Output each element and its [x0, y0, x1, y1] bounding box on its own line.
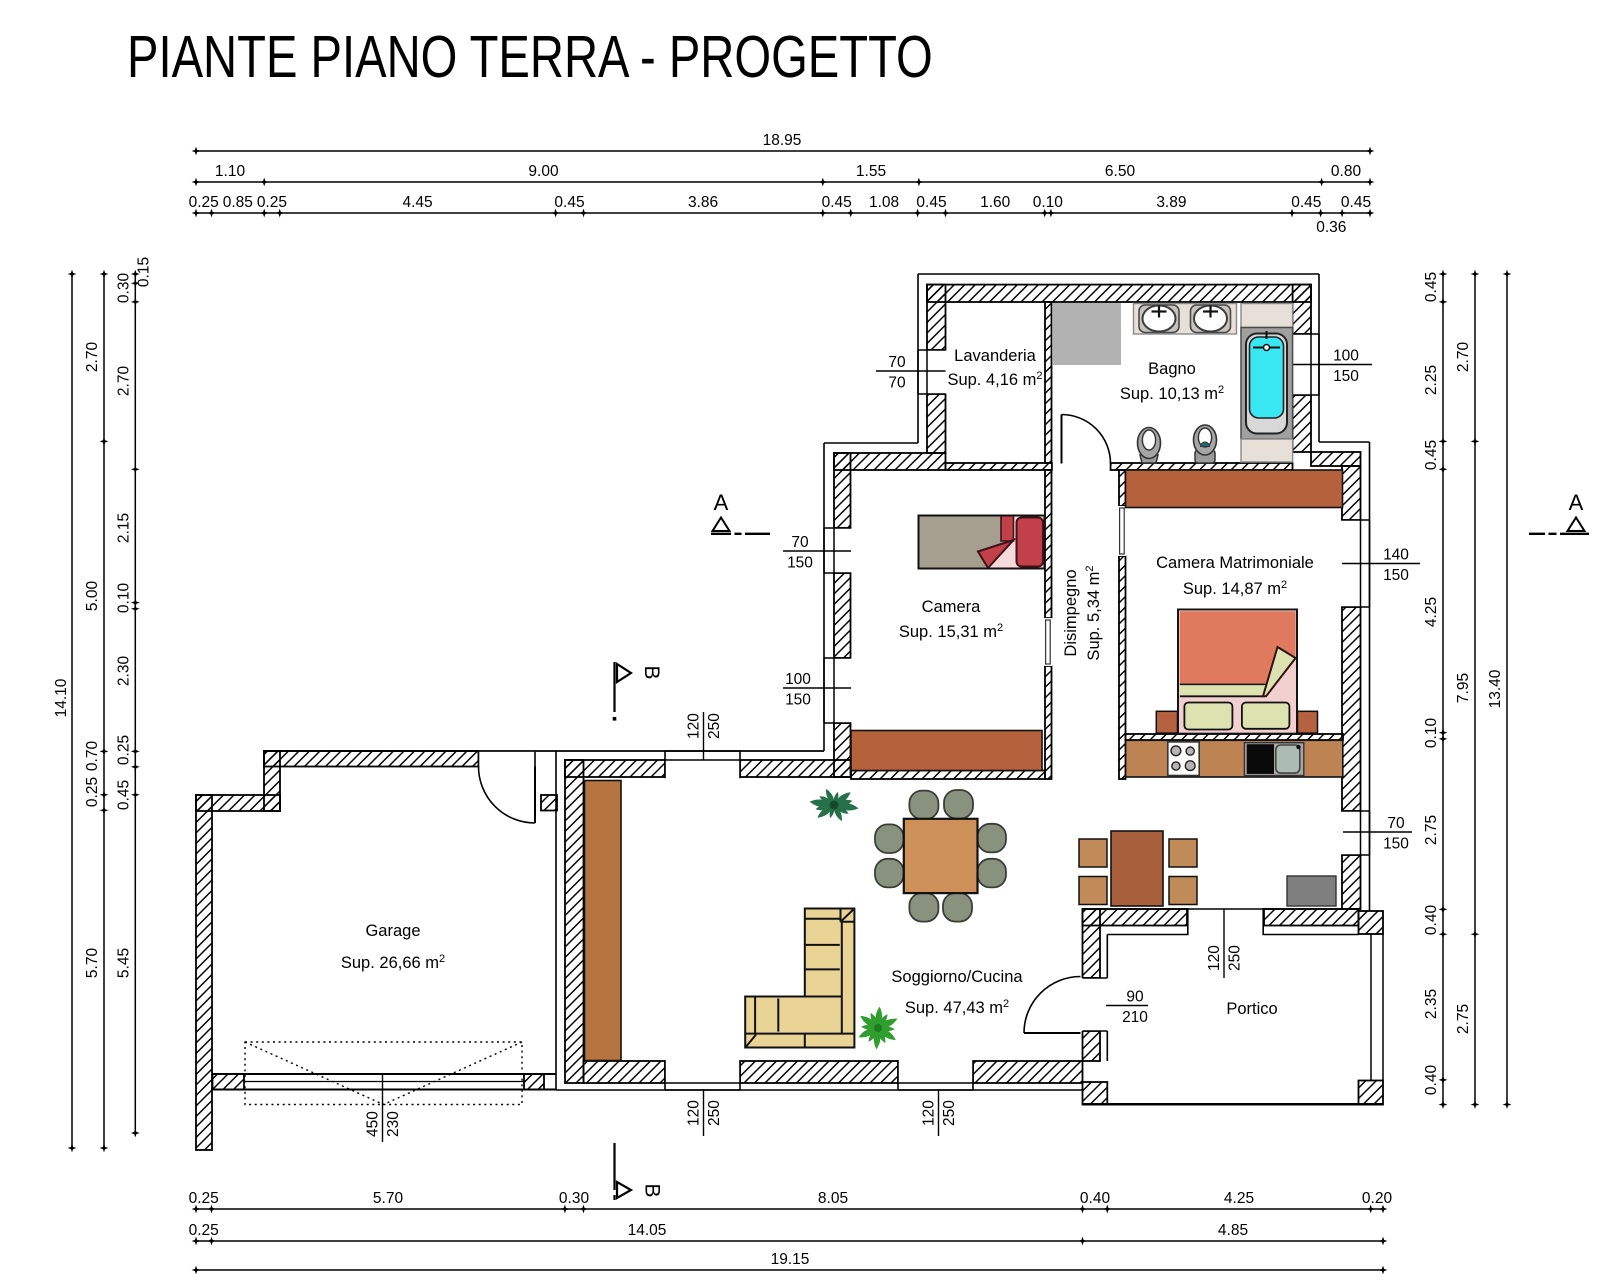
svg-text:2.30: 2.30 [115, 656, 132, 687]
svg-text:150: 150 [787, 555, 813, 572]
svg-text:0.30: 0.30 [115, 273, 132, 304]
svg-text:250: 250 [706, 1100, 723, 1126]
svg-text:14.10: 14.10 [53, 678, 70, 717]
svg-text:0.45: 0.45 [1423, 272, 1440, 302]
svg-text:0.45: 0.45 [822, 194, 852, 211]
svg-text:230: 230 [385, 1111, 402, 1137]
svg-text:0.70: 0.70 [84, 741, 101, 772]
svg-text:0.25: 0.25 [84, 777, 101, 807]
svg-text:0.10: 0.10 [1423, 718, 1440, 749]
svg-text:2.70: 2.70 [84, 342, 101, 373]
svg-text:4.25: 4.25 [1423, 597, 1440, 627]
svg-text:0.40: 0.40 [1423, 905, 1440, 936]
svg-text:0.45: 0.45 [115, 780, 132, 810]
svg-text:0.10: 0.10 [115, 583, 132, 614]
svg-text:0.25: 0.25 [189, 194, 219, 211]
svg-text:1.55: 1.55 [856, 163, 886, 180]
svg-text:120: 120 [921, 1100, 938, 1126]
svg-text:Lavanderia: Lavanderia [954, 347, 1036, 365]
svg-text:140: 140 [1383, 547, 1409, 564]
svg-text:0.25: 0.25 [189, 1190, 219, 1207]
svg-text:90: 90 [1126, 989, 1144, 1006]
svg-text:2.35: 2.35 [1423, 989, 1440, 1019]
svg-text:70: 70 [888, 375, 906, 392]
svg-text:2.15: 2.15 [115, 513, 132, 543]
svg-text:2.25: 2.25 [1423, 365, 1440, 395]
svg-text:120: 120 [686, 713, 703, 739]
svg-text:0.20: 0.20 [1362, 1190, 1393, 1207]
svg-text:Sup. 26,66 m2: Sup. 26,66 m2 [341, 953, 445, 972]
svg-text:Sup. 4,16 m2: Sup. 4,16 m2 [947, 370, 1042, 389]
svg-text:5.00: 5.00 [84, 581, 101, 612]
svg-text:150: 150 [1383, 567, 1409, 584]
svg-text:Camera: Camera [922, 598, 982, 616]
svg-text:150: 150 [1333, 368, 1359, 385]
svg-text:0.15: 0.15 [136, 257, 153, 287]
svg-text:A: A [1569, 490, 1584, 515]
svg-text:150: 150 [785, 692, 811, 709]
svg-text:5.70: 5.70 [84, 948, 101, 979]
svg-text:0.40: 0.40 [1423, 1065, 1440, 1096]
svg-text:Disimpegno: Disimpegno [1062, 569, 1080, 656]
svg-text:100: 100 [1333, 348, 1359, 365]
svg-text:0.45: 0.45 [916, 194, 946, 211]
svg-text:2.70: 2.70 [115, 366, 132, 397]
svg-text:9.00: 9.00 [528, 163, 559, 180]
svg-text:70: 70 [791, 534, 809, 551]
svg-text:100: 100 [785, 671, 811, 688]
svg-text:70: 70 [1387, 815, 1405, 832]
svg-text:3.86: 3.86 [688, 194, 718, 211]
svg-text:13.40: 13.40 [1487, 669, 1504, 708]
svg-text:70: 70 [888, 354, 906, 371]
svg-text:Sup. 47,43 m2: Sup. 47,43 m2 [905, 998, 1009, 1017]
svg-text:1.60: 1.60 [980, 194, 1011, 211]
svg-text:250: 250 [706, 713, 723, 739]
svg-text:4.45: 4.45 [403, 194, 433, 211]
svg-text:Sup. 10,13 m2: Sup. 10,13 m2 [1120, 384, 1224, 403]
svg-text:1.10: 1.10 [215, 163, 246, 180]
svg-text:Sup. 14,87 m2: Sup. 14,87 m2 [1183, 579, 1287, 598]
svg-text:2.75: 2.75 [1423, 815, 1440, 845]
svg-text:14.05: 14.05 [628, 1222, 667, 1239]
svg-text:19.15: 19.15 [771, 1251, 810, 1268]
svg-text:150: 150 [1383, 836, 1409, 853]
svg-text:0.45: 0.45 [1423, 440, 1440, 470]
svg-text:450: 450 [365, 1111, 382, 1137]
svg-text:250: 250 [941, 1100, 958, 1126]
svg-text:120: 120 [686, 1100, 703, 1126]
svg-text:B: B [640, 665, 663, 679]
svg-text:3.89: 3.89 [1156, 194, 1186, 211]
svg-text:210: 210 [1122, 1009, 1148, 1026]
svg-text:0.10: 0.10 [1033, 194, 1064, 211]
svg-text:0.85: 0.85 [223, 194, 253, 211]
svg-text:0.45: 0.45 [554, 194, 584, 211]
svg-text:A: A [714, 490, 729, 515]
svg-text:0.25: 0.25 [189, 1222, 219, 1239]
svg-text:0.80: 0.80 [1331, 163, 1362, 180]
svg-text:0.25: 0.25 [115, 735, 132, 765]
svg-text:Soggiorno/Cucina: Soggiorno/Cucina [891, 968, 1023, 986]
svg-text:0.36: 0.36 [1316, 219, 1346, 236]
svg-text:0.25: 0.25 [257, 194, 287, 211]
svg-text:6.50: 6.50 [1105, 163, 1136, 180]
svg-text:Sup. 5,34 m2: Sup. 5,34 m2 [1084, 565, 1103, 660]
svg-text:0.40: 0.40 [1080, 1190, 1111, 1207]
svg-text:0.45: 0.45 [1341, 194, 1371, 211]
svg-text:2.75: 2.75 [1455, 1004, 1472, 1034]
svg-text:8.05: 8.05 [818, 1190, 848, 1207]
svg-text:0.30: 0.30 [559, 1190, 590, 1207]
svg-text:Garage: Garage [365, 922, 420, 940]
svg-text:2.70: 2.70 [1455, 342, 1472, 373]
svg-text:PIANTE PIANO TERRA - PROGETTO: PIANTE PIANO TERRA - PROGETTO [127, 25, 933, 90]
svg-text:4.85: 4.85 [1218, 1222, 1248, 1239]
svg-text:1.08: 1.08 [869, 194, 899, 211]
svg-text:Camera Matrimoniale: Camera Matrimoniale [1156, 554, 1314, 572]
svg-text:Sup. 15,31 m2: Sup. 15,31 m2 [899, 622, 1003, 641]
svg-text:0.45: 0.45 [1291, 194, 1321, 211]
svg-text:4.25: 4.25 [1224, 1190, 1254, 1207]
svg-text:250: 250 [1227, 945, 1244, 971]
svg-text:5.70: 5.70 [373, 1190, 404, 1207]
svg-text:5.45: 5.45 [115, 948, 132, 978]
svg-text:B: B [641, 1183, 664, 1197]
svg-text:7.95: 7.95 [1455, 673, 1472, 703]
svg-text:120: 120 [1206, 945, 1223, 971]
svg-text:Bagno: Bagno [1148, 360, 1196, 378]
svg-text:Portico: Portico [1226, 1000, 1277, 1018]
svg-text:18.95: 18.95 [763, 132, 802, 149]
